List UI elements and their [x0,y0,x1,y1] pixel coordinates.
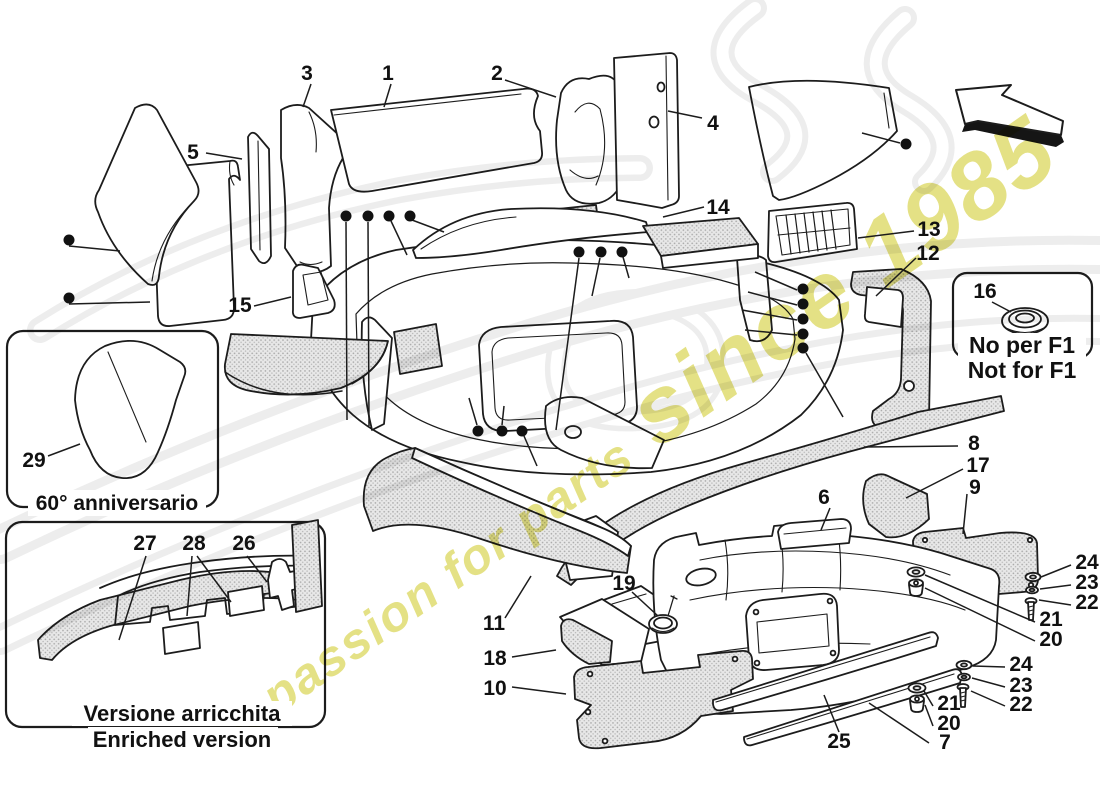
fastener-dot [798,343,809,354]
fastener-dot [384,211,395,222]
callout-17: 17 [966,454,989,477]
callout-7: 7 [939,731,951,754]
fastener-set-upper-left [908,567,925,596]
callout-13: 13 [917,218,940,241]
callout-25: 25 [827,730,851,753]
fastener-dot [341,211,352,222]
fastener-dot [517,426,528,437]
callout-4: 4 [707,112,719,135]
callout-15: 15 [228,294,252,317]
part-4-panel [614,53,679,208]
fastener-dot [405,211,416,222]
fastener-dot [497,426,508,437]
callout-22b: 22 [1009,693,1032,716]
fastener-dot [798,314,809,325]
part-28-pad-a [163,622,200,654]
callout-9: 9 [969,476,981,499]
callout-20: 20 [1039,628,1062,651]
callout-10: 10 [483,677,506,700]
fastener-dot [617,247,628,258]
callout-27: 27 [133,532,156,555]
callout-6: 6 [818,486,830,509]
fastener-dot [473,426,484,437]
parts-diagram-page: a passion for parts since 1985 [0,0,1100,800]
callout-26: 26 [232,532,255,555]
callout-28: 28 [182,532,206,555]
fastener-set-lower-left [909,683,926,712]
fastener-dot [798,284,809,295]
fastener-dot [64,235,75,246]
callout-22: 22 [1075,591,1098,614]
caption-f1-it: No per F1 [969,332,1075,358]
callout-12: 12 [916,242,939,265]
fastener-dot [363,211,374,222]
part-6-tab [778,519,851,549]
caption-anniversary: 60° anniversario [36,492,198,515]
callout-5: 5 [187,141,199,164]
callout-19: 19 [612,572,635,595]
part-28-pad-b [228,586,264,616]
callout-11: 11 [483,612,506,635]
fastener-dot [64,293,75,304]
callout-1: 1 [382,62,394,85]
callout-18: 18 [483,647,507,670]
callout-8: 8 [968,432,980,455]
caption-enriched-it: Versione arricchita [84,701,282,726]
fastener-dot [574,247,585,258]
callout-24b: 24 [1009,653,1033,676]
fastener-dot [798,329,809,340]
callout-2: 2 [491,62,503,85]
caption-f1-en: Not for F1 [968,357,1077,383]
callout-3: 3 [301,62,313,85]
fastener-dot [596,247,607,258]
callout-16: 16 [973,280,996,303]
parts-diagram-canvas: a passion for parts since 1985 [0,0,1100,800]
callout-14: 14 [706,196,730,219]
fastener-dot [798,299,809,310]
fastener-dot [901,139,912,150]
caption-enriched-en: Enriched version [93,727,272,752]
callout-29: 29 [22,449,45,472]
